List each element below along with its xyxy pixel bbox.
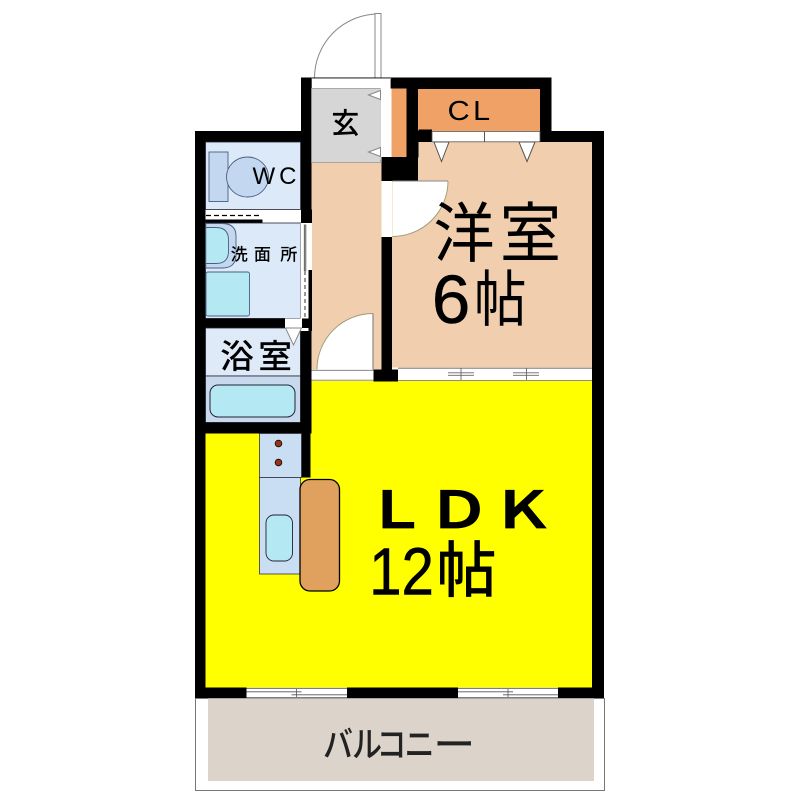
svg-text:CL: CL — [448, 95, 494, 126]
svg-text:6: 6 — [432, 261, 470, 338]
svg-text:WC: WC — [253, 163, 301, 190]
svg-text:12: 12 — [369, 535, 434, 610]
